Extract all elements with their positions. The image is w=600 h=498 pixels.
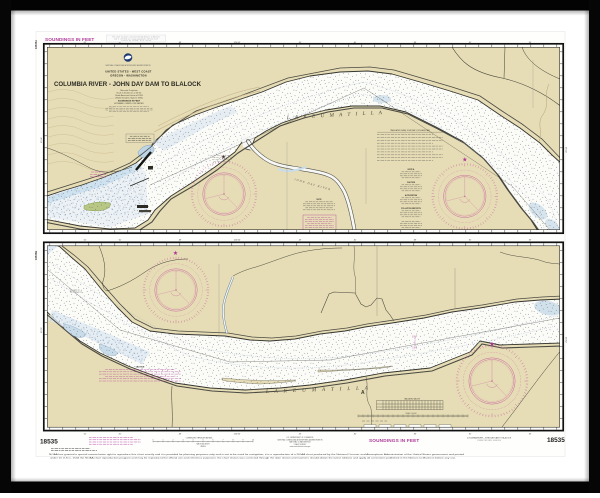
svg-text:(World Geodetic System 1984): (World Geodetic System 1984) <box>115 97 143 100</box>
svg-text:CAUTION: CAUTION <box>136 366 145 369</box>
svg-text:CORRECTED THRU: JUNE 2020: CORRECTED THRU: JUNE 2020 <box>477 440 501 442</box>
svg-text:SOUNDINGS IN FEET: SOUNDINGS IN FEET <box>369 438 420 443</box>
svg-text:18535: 18535 <box>547 437 565 444</box>
svg-text:45°52': 45°52' <box>564 337 566 343</box>
svg-text:CAUTION: CAUTION <box>407 181 416 184</box>
svg-text:45°44': 45°44' <box>41 137 43 143</box>
svg-text:NOAA has granted a special non: NOAA has granted a special nonexclusive … <box>49 453 464 456</box>
svg-text:SOUNDINGS IN FEET: SOUNDINGS IN FEET <box>45 37 95 42</box>
svg-text:under 15 U.S.C. 1534 the NOAA: under 15 U.S.C. 1534 the NOAA chart repr… <box>50 457 457 460</box>
svg-text:CORRECTED THROUGH NM 8/18: CORRECTED THROUGH NM 8/18 <box>186 437 213 439</box>
svg-text:A: A <box>361 390 365 396</box>
svg-text:UNITED STATES - WEST COAST: UNITED STATES - WEST COAST <box>105 70 151 74</box>
svg-text:120°45': 120°45' <box>234 434 241 436</box>
svg-text:45°50': 45°50' <box>41 327 43 333</box>
svg-text:POLLUTION REPORTS: POLLUTION REPORTS <box>401 208 421 210</box>
svg-text:NOTE A: NOTE A <box>408 168 415 171</box>
svg-text:TABULATED DATA, JOHN DAY LOCK: TABULATED DATA, JOHN DAY LOCK AND DAM <box>390 129 430 132</box>
svg-text:COLUMBIA RIVER - JOHN DAY DAM: COLUMBIA RIVER - JOHN DAY DAM TO BLALOCK <box>467 437 512 440</box>
svg-text:18535B: 18535B <box>34 251 38 260</box>
svg-text:45°42': 45°42' <box>564 147 566 153</box>
svg-text:120°45': 120°45' <box>234 42 241 44</box>
svg-text:18535: 18535 <box>40 439 58 446</box>
svg-text:AT MEAN LOWER LOW WATER: AT MEAN LOWER LOW WATER <box>114 102 144 105</box>
svg-text:OREGON - WASHINGTON: OREGON - WASHINGTON <box>110 73 146 77</box>
svg-text:COLUMBIA RIVER - JOHN DAY DAM: COLUMBIA RIVER - JOHN DAY DAM TO BLALOCK <box>54 82 202 88</box>
svg-text:NOTE: NOTE <box>317 199 323 201</box>
svg-text:18535A: 18535A <box>34 40 38 49</box>
svg-text:120°45': 120°45' <box>234 239 241 241</box>
svg-text:AUTHORITIES: AUTHORITIES <box>405 194 418 197</box>
